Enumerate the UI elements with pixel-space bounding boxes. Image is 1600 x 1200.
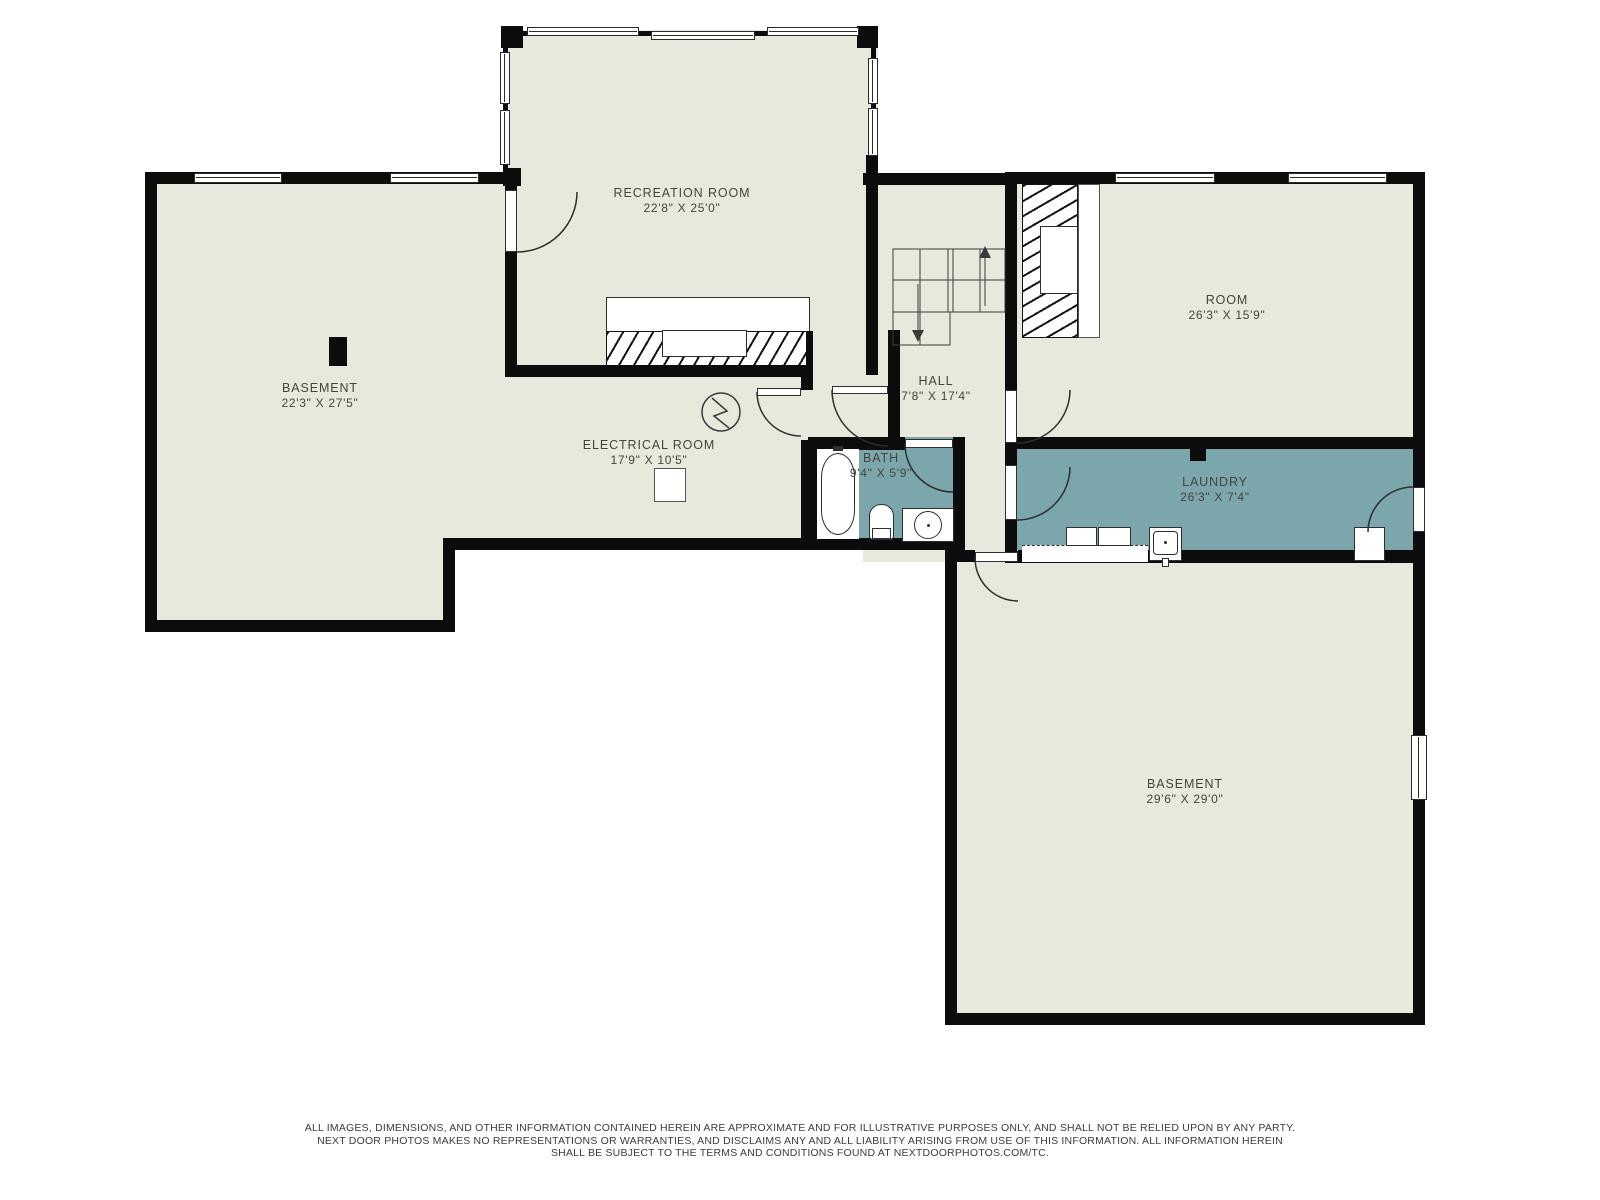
room-label-recreation-room: RECREATION ROOM22'8" X 25'0"	[614, 186, 751, 216]
sink-drain-icon	[1164, 541, 1167, 544]
room-dimensions: 22'8" X 25'0"	[614, 201, 751, 216]
door-leaf	[1413, 487, 1425, 532]
room-label-room: ROOM26'3" X 15'9"	[1189, 293, 1266, 323]
wall	[888, 330, 900, 443]
electrical-panel-box	[654, 468, 686, 502]
window	[390, 173, 479, 183]
wall	[953, 437, 965, 550]
window	[767, 27, 859, 36]
wall	[1413, 449, 1425, 487]
door-leaf	[757, 388, 801, 396]
appliance	[1354, 527, 1385, 561]
window	[651, 31, 755, 40]
window	[868, 108, 878, 156]
window	[868, 58, 878, 104]
dryer	[1098, 527, 1131, 546]
floor-plan: RECREATION ROOM22'8" X 25'0"BASEMENT22'3…	[0, 0, 1600, 1200]
fireplace-hearth	[606, 297, 810, 332]
room-label-hall: HALL7'8" X 17'4"	[901, 374, 971, 404]
window	[500, 52, 510, 104]
door-leaf	[1005, 465, 1017, 520]
corner-post	[503, 168, 521, 186]
support-post	[329, 337, 347, 366]
window	[500, 110, 510, 165]
wall	[505, 365, 813, 377]
chimney-flue	[1040, 226, 1078, 294]
washer	[1066, 527, 1097, 546]
wall	[145, 620, 455, 632]
room-dimensions: 7'8" X 17'4"	[901, 389, 971, 404]
wall	[145, 172, 157, 632]
door-leaf	[832, 386, 888, 394]
corner-post	[857, 26, 878, 48]
wall	[1413, 172, 1425, 449]
wall	[945, 550, 957, 1025]
room-dimensions: 9'4" X 5'9"	[850, 466, 912, 481]
window	[1288, 173, 1387, 183]
room-dimensions: 29'6" X 29'0"	[1147, 792, 1224, 807]
laundry-counter	[1022, 545, 1148, 562]
fireplace-firebox	[662, 330, 747, 357]
wall	[866, 155, 878, 375]
door-leaf	[905, 439, 953, 448]
room-dimensions: 26'3" X 7'4"	[1180, 490, 1250, 505]
footer-line: NEXT DOOR PHOTOS MAKES NO REPRESENTATION…	[0, 1135, 1600, 1148]
chimney-ledge	[1078, 184, 1100, 338]
toilet-tank	[872, 528, 891, 539]
room-dimensions: 26'3" X 15'9"	[1189, 308, 1266, 323]
footer-disclaimer: ALL IMAGES, DIMENSIONS, AND OTHER INFORM…	[0, 1122, 1600, 1160]
room-label-laundry: LAUNDRY26'3" X 7'4"	[1180, 475, 1250, 505]
wall	[1005, 172, 1017, 390]
wall	[443, 538, 455, 632]
wall	[863, 173, 1017, 185]
door-leaf	[505, 190, 517, 252]
wall	[1005, 443, 1017, 465]
room-name: LAUNDRY	[1180, 475, 1250, 490]
wall	[1413, 800, 1425, 1013]
wall	[1005, 437, 1425, 449]
room-label-basement-lower: BASEMENT29'6" X 29'0"	[1147, 777, 1224, 807]
room-name: HALL	[901, 374, 971, 389]
sink-drain-icon	[927, 524, 930, 527]
door-leaf	[975, 552, 1018, 562]
room-label-bath: BATH9'4" X 5'9"	[850, 451, 912, 481]
room-label-electrical-room: ELECTRICAL ROOM17'9" X 10'5"	[583, 438, 716, 468]
basement-upper-floor	[145, 172, 505, 548]
corner-post	[501, 26, 523, 48]
room-dimensions: 22'3" X 27'5"	[282, 396, 359, 411]
bathtub-faucet-icon	[833, 446, 843, 451]
room-name: BATH	[850, 451, 912, 466]
wall-post	[1190, 449, 1206, 461]
room-name: BASEMENT	[282, 381, 359, 396]
window	[527, 27, 639, 36]
room-name: BASEMENT	[1147, 777, 1224, 792]
room-name: RECREATION ROOM	[614, 186, 751, 201]
room-dimensions: 17'9" X 10'5"	[583, 453, 716, 468]
footer-line: SHALL BE SUBJECT TO THE TERMS AND CONDIT…	[0, 1147, 1600, 1160]
wall	[505, 252, 517, 375]
window	[194, 173, 282, 183]
laundry-sink-tap	[1162, 558, 1169, 567]
room-name: ELECTRICAL ROOM	[583, 438, 716, 453]
room-name: ROOM	[1189, 293, 1266, 308]
door-leaf	[1005, 390, 1017, 443]
window	[1411, 735, 1427, 800]
wall	[1413, 563, 1425, 735]
room-label-basement-upper: BASEMENT22'3" X 27'5"	[282, 381, 359, 411]
wall	[945, 1013, 1425, 1025]
wall	[801, 365, 813, 390]
footer-line: ALL IMAGES, DIMENSIONS, AND OTHER INFORM…	[0, 1122, 1600, 1135]
window	[1115, 173, 1215, 183]
